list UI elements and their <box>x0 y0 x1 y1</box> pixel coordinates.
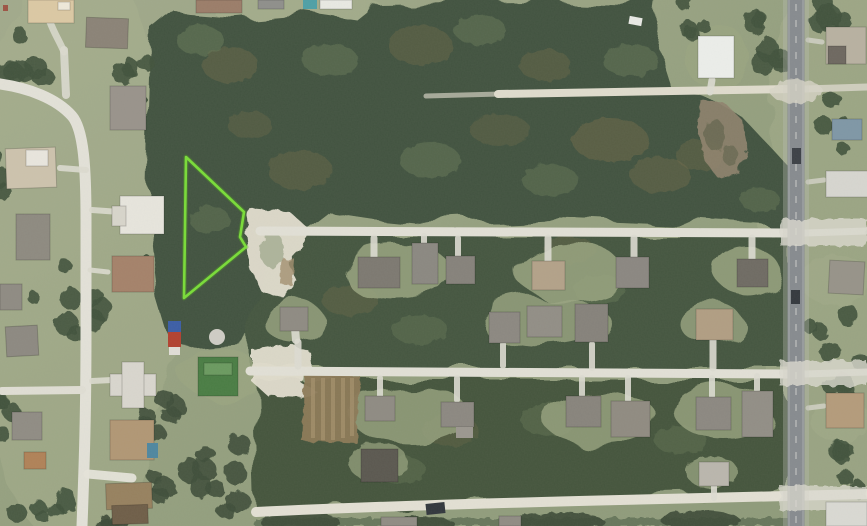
scene-root <box>0 0 867 526</box>
aerial-map-view[interactable] <box>0 0 867 526</box>
photo-grain <box>0 0 867 526</box>
satellite-imagery <box>0 0 867 526</box>
